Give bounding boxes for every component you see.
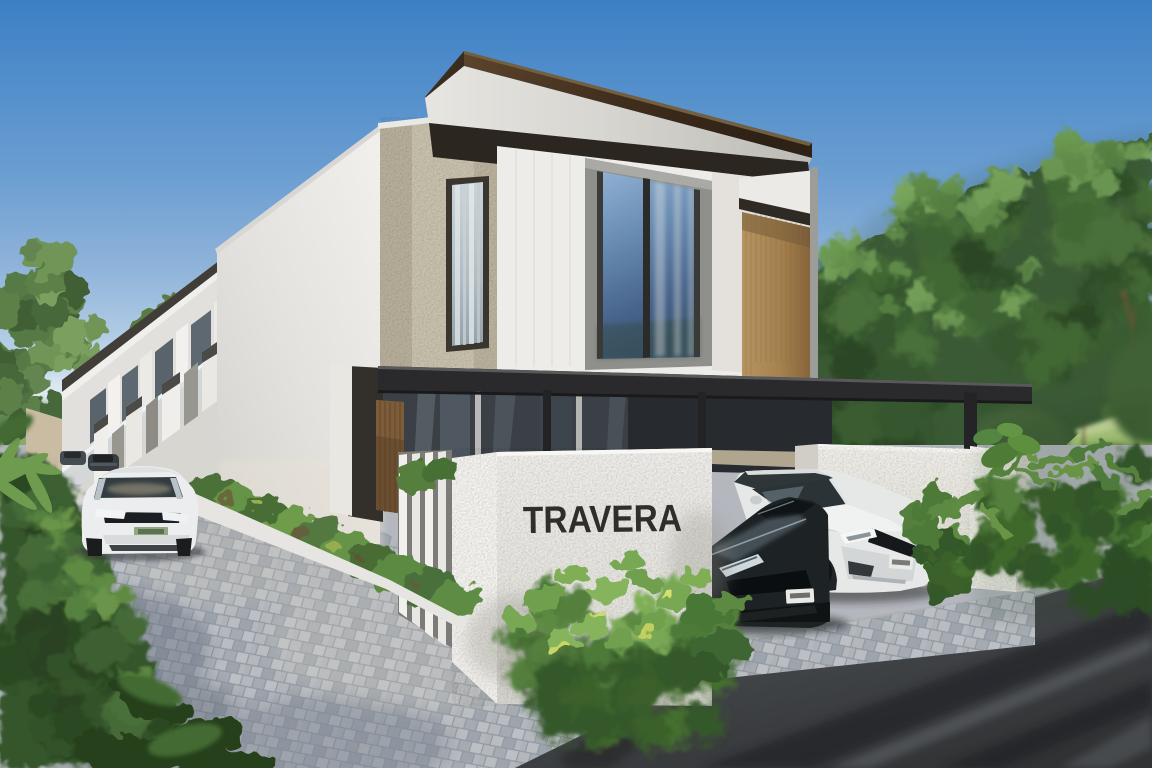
svg-text:TRAVERA: TRAVERA <box>523 498 683 542</box>
